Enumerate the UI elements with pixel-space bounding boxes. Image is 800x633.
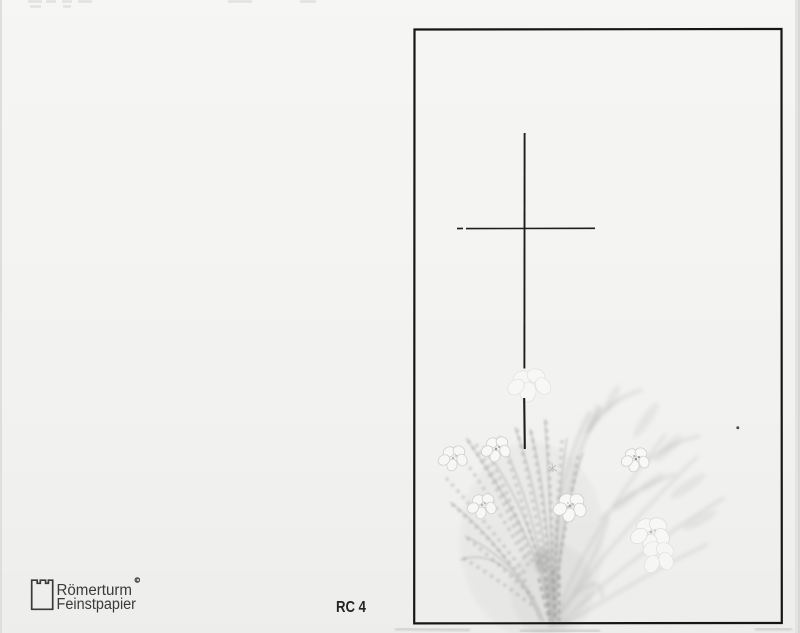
svg-text:Feinstpapier: Feinstpapier [57, 596, 137, 613]
svg-text:RC 4: RC 4 [336, 599, 366, 616]
